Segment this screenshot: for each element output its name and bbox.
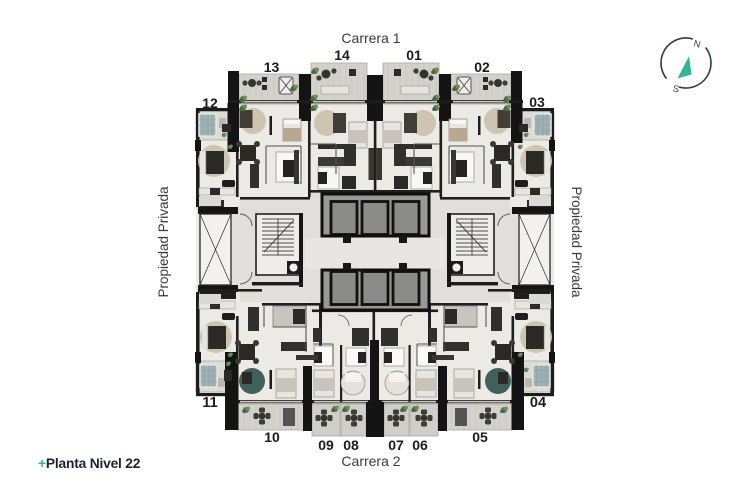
svg-text:11: 11 [202,395,217,411]
svg-text:Propiedad Privada: Propiedad Privada [569,186,584,298]
svg-text:03: 03 [529,94,545,110]
svg-text:09: 09 [318,437,334,453]
svg-text:10: 10 [264,429,280,445]
svg-text:04: 04 [530,395,546,411]
svg-text:14: 14 [334,47,350,63]
svg-text:Carrera 1: Carrera 1 [341,30,400,46]
svg-text:12: 12 [202,95,218,111]
svg-text:07: 07 [388,437,404,453]
svg-text:+Planta Nivel 22: +Planta Nivel 22 [38,456,141,471]
svg-text:Propiedad Privada: Propiedad Privada [156,186,171,298]
svg-text:05: 05 [472,429,488,445]
svg-text:Carrera 2: Carrera 2 [341,453,400,469]
svg-text:06: 06 [412,437,428,453]
svg-text:08: 08 [343,437,359,453]
svg-text:13: 13 [264,59,280,75]
svg-text:01: 01 [406,47,422,63]
svg-text:02: 02 [474,59,490,75]
